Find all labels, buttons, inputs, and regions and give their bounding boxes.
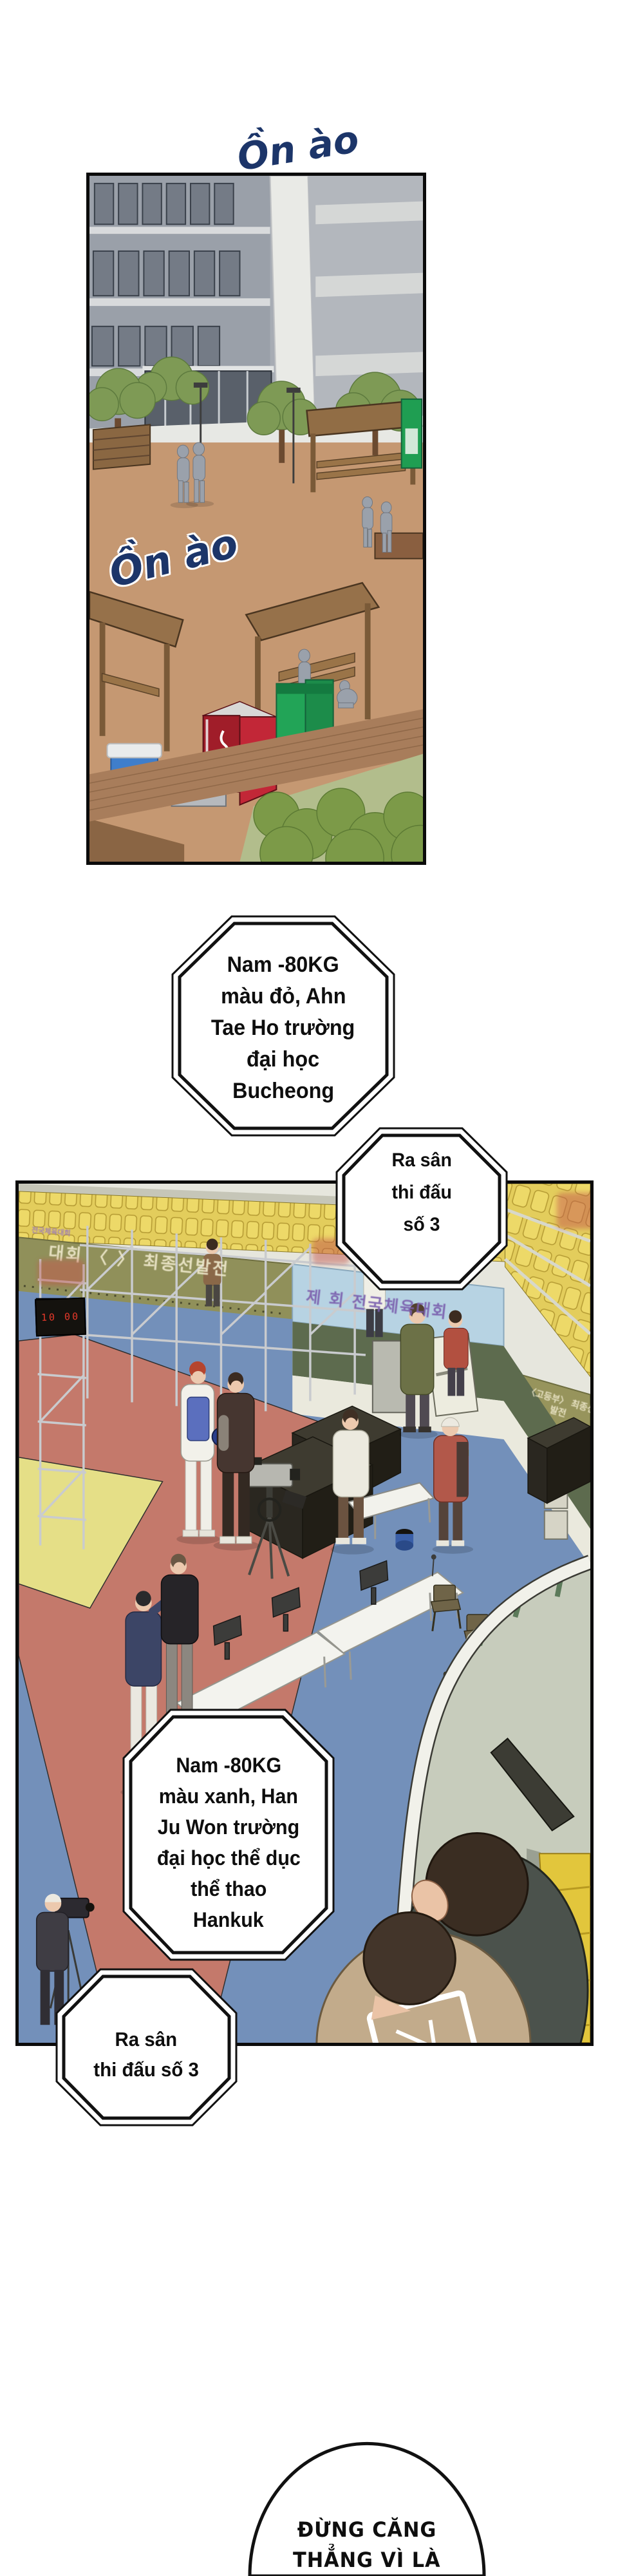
bubble2-line: số 3 <box>403 1209 440 1241</box>
bubble2-line: thi đấu <box>391 1177 451 1209</box>
man-black-tshirt <box>162 1575 198 1643</box>
bubble3-line: Hankuk <box>193 1904 264 1935</box>
panel-courtyard <box>86 173 426 865</box>
man-white-jacket <box>333 1430 368 1497</box>
bubble1-line: Tae Ho trường <box>211 1012 355 1044</box>
bubble4-line: Ra sân <box>115 2024 178 2054</box>
bubble5-text: ĐỪNG CĂNG THẲNG VÌ LÀ <box>270 2513 464 2576</box>
bushes <box>254 788 423 862</box>
bubble1-text: Nam -80KG màu đỏ, Ahn Tae Ho trường đại … <box>187 942 380 1114</box>
courtyard-scene-art <box>89 176 423 862</box>
sfx-noise-top: Ồn ào <box>234 117 362 180</box>
bubble1-line: Nam -80KG <box>227 949 339 981</box>
bubble3-line: Ju Won trường <box>158 1812 299 1842</box>
bubble1-line: đại học <box>247 1044 319 1075</box>
bubble5-line: ĐỪNG CĂNG <box>297 2515 437 2545</box>
bubble3-line: màu xanh, Han <box>159 1781 298 1812</box>
comic-page: Ồn ào Ồn ào <box>0 0 618 2576</box>
bubble2-text: Ra sân thi đấu số 3 <box>351 1121 492 1265</box>
bubble2-line: Ra sân <box>391 1144 451 1177</box>
blurred-banner-patch <box>557 1193 594 1229</box>
bubble3-text: Nam -80KG màu xanh, Han Ju Won trường đạ… <box>132 1746 325 1939</box>
bubble3-line: đại học thể dục <box>157 1842 301 1873</box>
man-olive-jacket <box>400 1324 433 1394</box>
bubble1-line: màu đỏ, Ahn <box>221 981 346 1012</box>
bubble5-line: THẲNG VÌ LÀ <box>293 2545 440 2575</box>
bubble3-line: thể thao <box>191 1873 267 1904</box>
blurred-banner-patch <box>38 1260 84 1285</box>
match-clock-display: 10 00 <box>35 1298 86 1337</box>
bubble4-line: thi đấu số 3 <box>93 2054 199 2085</box>
bubble4-text: Ra sân thi đấu số 3 <box>59 2023 233 2085</box>
bubble1-line: Bucheong <box>232 1075 334 1107</box>
bubble3-line: Nam -80KG <box>176 1750 281 1781</box>
man-navy-pointing <box>126 1612 161 1686</box>
